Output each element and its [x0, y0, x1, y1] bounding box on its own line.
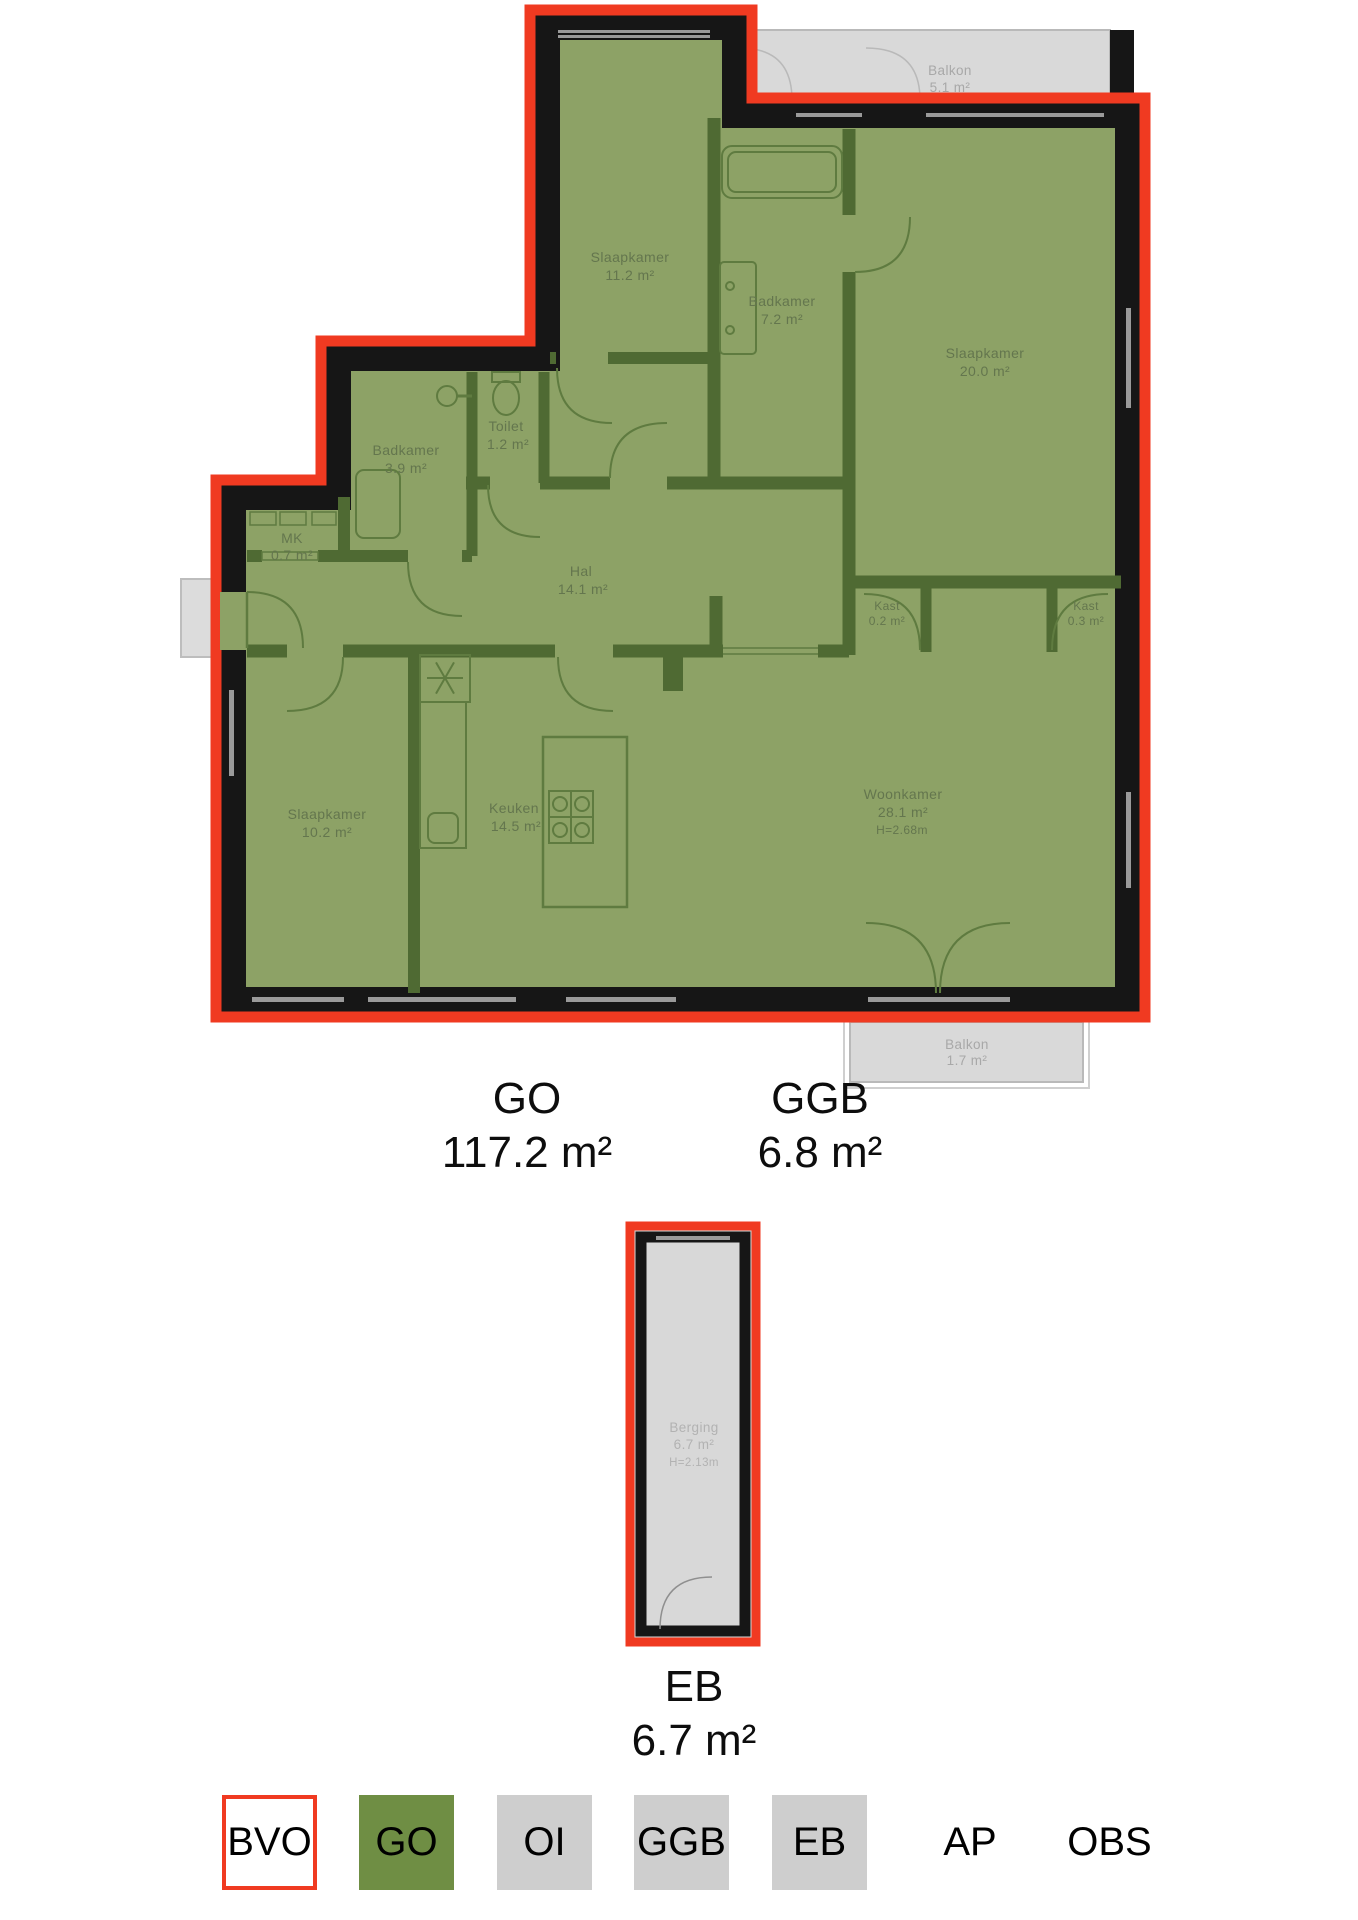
toilet-area: 1.2 m² — [487, 436, 529, 452]
badkamer-2-name: Badkamer — [372, 442, 439, 458]
eb-summary-area: 6.7 m² — [544, 1714, 844, 1768]
legend-ap: AP — [920, 1795, 1020, 1890]
badkamer-2-area: 3.9 m² — [385, 460, 427, 476]
hal-name: Hal — [570, 563, 592, 579]
woonkamer-area: 28.1 m² — [878, 804, 928, 820]
woonkamer-height: H=2.68m — [876, 823, 928, 837]
kast-2-area: 0.3 m² — [1068, 614, 1104, 628]
ggb-summary-label: GGB — [650, 1072, 990, 1126]
floorplan-page: { "plan": { "balkon_top": {"name": "Balk… — [0, 0, 1358, 1920]
woonkamer-name: Woonkamer — [864, 786, 943, 802]
go-summary-label: GO — [357, 1072, 697, 1126]
legend-eb: EB — [772, 1795, 867, 1890]
balkon-bottom-name: Balkon — [945, 1037, 989, 1052]
keuken-area: 14.5 m² — [491, 818, 541, 834]
legend-obs: OBS — [1052, 1795, 1167, 1890]
badkamer-1-name: Badkamer — [748, 293, 815, 309]
balkon-bottom-area: 1.7 m² — [947, 1053, 988, 1068]
apartment-walls — [233, 27, 1128, 1000]
mk-area: 0.7 m² — [271, 547, 313, 563]
toilet-name: Toilet — [488, 418, 523, 434]
go-summary-area: 117.2 m² — [357, 1126, 697, 1180]
slaapkamer-1-name: Slaapkamer — [591, 249, 670, 265]
kast-1-name: Kast — [874, 599, 900, 613]
berging-height: H=2.13m — [669, 1457, 719, 1469]
ggb-summary: GGB 6.8 m² — [650, 1072, 990, 1180]
go-summary: GO 117.2 m² — [357, 1072, 697, 1180]
berging-name: Berging — [669, 1420, 718, 1435]
balkon-top-name: Balkon — [928, 63, 972, 78]
legend-go: GO — [359, 1795, 454, 1890]
mk-name: MK — [281, 530, 303, 546]
legend-ggb: GGB — [634, 1795, 729, 1890]
eb-summary: EB 6.7 m² — [544, 1660, 844, 1768]
slaapkamer-2-area: 20.0 m² — [960, 363, 1010, 379]
berging-unit: Berging 6.7 m² H=2.13m — [630, 1226, 756, 1642]
slaapkamer-3-name: Slaapkamer — [288, 806, 367, 822]
hal-area: 14.1 m² — [558, 581, 608, 597]
floorplan-drawing: Balkon 5.1 m² Balkon 1.7 m² — [0, 0, 1358, 1700]
slaapkamer-2-name: Slaapkamer — [946, 345, 1025, 361]
legend-bvo: BVO — [222, 1795, 317, 1890]
berging-area: 6.7 m² — [674, 1437, 715, 1452]
kast-2-name: Kast — [1073, 599, 1099, 613]
slaapkamer-3-area: 10.2 m² — [302, 824, 352, 840]
legend-oi: OI — [497, 1795, 592, 1890]
entrance-door-gap — [220, 592, 246, 650]
eb-summary-label: EB — [544, 1660, 844, 1714]
ggb-summary-area: 6.8 m² — [650, 1126, 990, 1180]
kast-1-area: 0.2 m² — [869, 614, 905, 628]
badkamer-1-area: 7.2 m² — [761, 311, 803, 327]
berging-window — [656, 1236, 730, 1240]
keuken-name: Keuken — [489, 800, 539, 816]
slaapkamer-1-area: 11.2 m² — [605, 267, 654, 283]
